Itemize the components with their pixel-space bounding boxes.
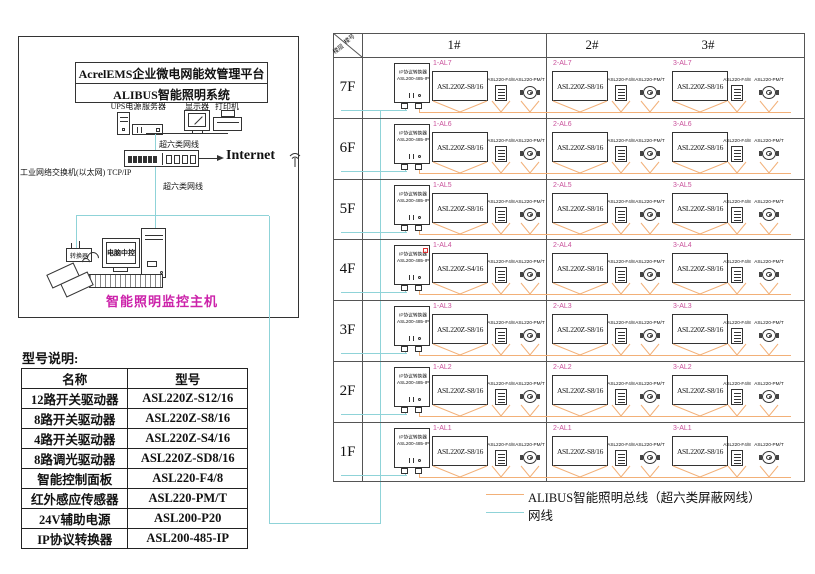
panel-slot <box>618 214 625 215</box>
panel-icon <box>731 146 743 162</box>
sensor-icon <box>762 147 776 160</box>
v-connector <box>432 101 488 113</box>
converter-mark <box>418 216 421 219</box>
panel-slot <box>498 332 505 333</box>
sensor-dot <box>769 153 771 155</box>
row-divider <box>333 300 805 301</box>
sensor-nub <box>657 272 660 277</box>
al-circuit-label: 3-AL5 <box>673 182 692 189</box>
converter-mark <box>418 94 421 97</box>
panel-model-label: ASL220-F4/8 <box>485 260 518 265</box>
row-divider <box>333 179 805 180</box>
sensor-nub <box>657 212 660 217</box>
sensor-model-label: ASL220-PM/T <box>514 321 547 326</box>
panel-model-label: ASL220-F4/8 <box>605 139 638 144</box>
panel-icon <box>731 389 743 405</box>
v-connector <box>520 101 540 113</box>
panel-slot <box>618 92 625 93</box>
sensor-model-label: ASL220-PM/T <box>634 321 667 326</box>
panel-slot <box>618 393 625 394</box>
ip-converter-box: IP协议转换器ASL200-485-IP <box>394 367 430 407</box>
v-connector <box>491 405 511 417</box>
sensor-nub <box>640 90 643 95</box>
panel-model-label: ASL220-F4/8 <box>485 139 518 144</box>
sensor-nub <box>776 272 779 277</box>
panel-icon <box>495 450 507 466</box>
ip-converter-box: IP协议转换器ASL200-485-IP <box>394 185 430 225</box>
panel-model-label: ASL220-F4/8 <box>721 443 754 448</box>
sensor-nub <box>640 333 643 338</box>
panel-model-label: ASL220-F4/8 <box>721 382 754 387</box>
sensor-model-label: ASL220-PM/T <box>514 382 547 387</box>
sensor-nub <box>657 333 660 338</box>
sensor-nub <box>776 151 779 156</box>
panel-slot <box>734 454 741 455</box>
converter-mark <box>409 215 410 220</box>
sensor-dot <box>650 396 652 398</box>
sensor-icon <box>762 451 776 464</box>
driver-box: ASL220Z-S8/16 <box>672 193 728 223</box>
v-connector <box>640 101 660 113</box>
sensor-nub <box>776 394 779 399</box>
v-connector <box>640 162 660 174</box>
v-connector <box>672 162 728 174</box>
panel-slot <box>618 454 625 455</box>
driver-model-label: ASL220Z-S8/16 <box>553 204 607 213</box>
panel-slot <box>618 463 625 464</box>
sensor-dot <box>769 457 771 459</box>
sensor-nub <box>776 212 779 217</box>
al-circuit-label: 2-AL7 <box>553 60 572 67</box>
driver-model-label: ASL220Z-S8/16 <box>433 325 487 334</box>
converter-mark <box>413 154 414 159</box>
panel-slot <box>618 460 625 461</box>
driver-model-label: ASL220Z-S8/16 <box>553 143 607 152</box>
converter-mark <box>418 337 421 340</box>
panel-icon <box>495 146 507 162</box>
ip-converter-model: ASL200-485-IP <box>396 259 430 264</box>
panel-icon <box>615 146 627 162</box>
v-connector <box>727 405 747 417</box>
driver-model-label: ASL220Z-S8/16 <box>553 325 607 334</box>
panel-slot <box>618 220 625 221</box>
panel-slot <box>498 454 505 455</box>
ip-converter-model: ASL200-485-IP <box>396 138 430 143</box>
al-circuit-label: 1-AL6 <box>433 121 452 128</box>
v-connector <box>552 283 608 295</box>
panel-slot <box>498 280 505 281</box>
converter-mark <box>413 458 414 463</box>
panel-slot <box>618 159 625 160</box>
panel-model-label: ASL220-F4/8 <box>605 443 638 448</box>
ip-converter-name: IP协议转换器 <box>399 433 427 440</box>
v-connector <box>759 101 779 113</box>
driver-box: ASL220Z-S8/16 <box>432 132 488 162</box>
sensor-dot <box>530 153 532 155</box>
sensor-model-label: ASL220-PM/T <box>634 382 667 387</box>
sensor-nub <box>759 455 762 460</box>
sensor-dot <box>769 274 771 276</box>
sensor-dot <box>650 214 652 216</box>
v-connector <box>611 466 631 478</box>
driver-model-label: ASL220Z-S8/16 <box>673 386 727 395</box>
panel-slot <box>498 277 505 278</box>
panel-slot <box>734 217 741 218</box>
sensor-nub <box>537 455 540 460</box>
converter-mark <box>409 154 410 159</box>
sensor-icon <box>523 329 537 342</box>
v-connector <box>672 344 728 356</box>
sensor-model-label: ASL220-PM/T <box>753 443 786 448</box>
panel-icon <box>731 85 743 101</box>
v-connector <box>727 283 747 295</box>
panel-icon <box>731 267 743 283</box>
row-divider <box>333 118 805 119</box>
sensor-icon <box>643 268 657 281</box>
ip-converter-name: IP协议转换器 <box>399 190 427 197</box>
panel-model-label: ASL220-F4/8 <box>485 321 518 326</box>
panel-model-label: ASL220-F4/8 <box>721 260 754 265</box>
panel-slot <box>734 271 741 272</box>
floor-label: 5F <box>333 179 362 239</box>
floor-label: 3F <box>333 300 362 361</box>
driver-box: ASL220Z-S8/16 <box>552 253 608 283</box>
sensor-dot <box>650 274 652 276</box>
sensor-model-label: ASL220-PM/T <box>753 200 786 205</box>
panel-icon <box>495 267 507 283</box>
panel-slot <box>498 95 505 96</box>
al-circuit-label: 1-AL2 <box>433 364 452 371</box>
panel-slot <box>498 156 505 157</box>
sensor-dot <box>530 92 532 94</box>
sensor-icon <box>762 208 776 221</box>
driver-box: ASL220Z-S4/16 <box>432 253 488 283</box>
al-circuit-label: 3-AL6 <box>673 121 692 128</box>
panel-icon <box>495 85 507 101</box>
net-line <box>341 171 407 172</box>
sensor-nub <box>657 151 660 156</box>
row-divider <box>333 422 805 423</box>
sensor-nub <box>640 212 643 217</box>
sensor-icon <box>643 390 657 403</box>
panel-slot <box>734 89 741 90</box>
driver-model-label: ASL220Z-S8/16 <box>433 143 487 152</box>
v-connector <box>491 344 511 356</box>
driver-box: ASL220Z-S8/16 <box>552 436 608 466</box>
panel-slot <box>618 335 625 336</box>
sensor-dot <box>650 153 652 155</box>
panel-slot <box>734 393 741 394</box>
sensor-model-label: ASL220-PM/T <box>514 200 547 205</box>
sensor-nub <box>520 394 523 399</box>
net-line <box>341 414 407 415</box>
sensor-icon <box>523 451 537 464</box>
sensor-nub <box>776 90 779 95</box>
panel-slot <box>734 399 741 400</box>
v-connector <box>727 101 747 113</box>
panel-icon <box>615 328 627 344</box>
panel-slot <box>734 214 741 215</box>
driver-model-label: ASL220Z-S8/16 <box>673 204 727 213</box>
panel-slot <box>734 153 741 154</box>
v-connector <box>552 223 608 235</box>
v-connector <box>640 283 660 295</box>
floor-label: 7F <box>333 57 362 118</box>
v-connector <box>640 466 660 478</box>
v-connector <box>520 405 540 417</box>
converter-mark <box>413 93 414 98</box>
driver-model-label: ASL220Z-S4/16 <box>433 264 487 273</box>
sensor-model-label: ASL220-PM/T <box>634 260 667 265</box>
driver-box: ASL220Z-S8/16 <box>432 71 488 101</box>
panel-icon <box>495 389 507 405</box>
panel-slot <box>498 98 505 99</box>
ip-converter-model: ASL200-485-IP <box>396 320 430 325</box>
v-connector <box>552 101 608 113</box>
driver-box: ASL220Z-S8/16 <box>672 132 728 162</box>
ip-converter-box: IP协议转换器ASL200-485-IP <box>394 63 430 103</box>
sensor-icon <box>523 86 537 99</box>
sensor-nub <box>537 272 540 277</box>
driver-box: ASL220Z-S8/16 <box>672 253 728 283</box>
v-connector <box>491 283 511 295</box>
panel-slot <box>734 277 741 278</box>
panel-slot <box>734 211 741 212</box>
panel-slot <box>498 335 505 336</box>
panel-slot <box>734 338 741 339</box>
sensor-model-label: ASL220-PM/T <box>634 443 667 448</box>
sensor-icon <box>762 329 776 342</box>
v-connector <box>759 344 779 356</box>
v-connector <box>672 466 728 478</box>
driver-model-label: ASL220Z-S8/16 <box>673 82 727 91</box>
sensor-nub <box>520 212 523 217</box>
driver-box: ASL220Z-S8/16 <box>552 132 608 162</box>
panel-icon <box>615 207 627 223</box>
v-connector <box>491 466 511 478</box>
v-connector <box>520 344 540 356</box>
driver-model-label: ASL220Z-S8/16 <box>553 386 607 395</box>
sensor-dot <box>530 396 532 398</box>
sensor-nub <box>520 272 523 277</box>
panel-slot <box>498 341 505 342</box>
converter-port <box>401 285 408 291</box>
v-connector <box>611 162 631 174</box>
panel-slot <box>618 338 625 339</box>
sensor-dot <box>530 214 532 216</box>
panel-slot <box>618 396 625 397</box>
panel-slot <box>498 399 505 400</box>
v-connector <box>672 405 728 417</box>
floor-label: 1F <box>333 422 362 482</box>
v-connector <box>520 283 540 295</box>
al-circuit-label: 2-AL4 <box>553 242 572 249</box>
sensor-model-label: ASL220-PM/T <box>634 139 667 144</box>
v-connector <box>432 162 488 174</box>
v-connector <box>727 162 747 174</box>
sensor-model-label: ASL220-PM/T <box>514 78 547 83</box>
sensor-nub <box>537 151 540 156</box>
sensor-icon <box>523 390 537 403</box>
sensor-icon <box>643 451 657 464</box>
sensor-dot <box>769 335 771 337</box>
panel-slot <box>498 150 505 151</box>
panel-slot <box>498 338 505 339</box>
v-connector <box>611 283 631 295</box>
driver-model-label: ASL220Z-S8/16 <box>673 325 727 334</box>
sensor-nub <box>776 455 779 460</box>
panel-model-label: ASL220-F4/8 <box>721 321 754 326</box>
panel-slot <box>618 98 625 99</box>
al-circuit-label: 3-AL2 <box>673 364 692 371</box>
sensor-dot <box>769 92 771 94</box>
panel-icon <box>615 85 627 101</box>
al-circuit-label: 3-AL1 <box>673 425 692 432</box>
panel-slot <box>734 280 741 281</box>
sensor-nub <box>776 333 779 338</box>
legend-bus-line <box>486 494 524 495</box>
panel-model-label: ASL220-F4/8 <box>485 382 518 387</box>
converter-port <box>401 164 408 170</box>
panel-slot <box>734 274 741 275</box>
sensor-model-label: ASL220-PM/T <box>753 78 786 83</box>
sensor-model-label: ASL220-PM/T <box>634 200 667 205</box>
ip-converter-name: IP协议转换器 <box>399 68 427 75</box>
v-connector <box>611 223 631 235</box>
al-circuit-label: 2-AL5 <box>553 182 572 189</box>
panel-slot <box>498 457 505 458</box>
ip-converter-name: IP协议转换器 <box>399 129 427 136</box>
sensor-nub <box>640 151 643 156</box>
sensor-model-label: ASL220-PM/T <box>634 78 667 83</box>
sensor-nub <box>520 90 523 95</box>
panel-slot <box>618 95 625 96</box>
panel-slot <box>618 402 625 403</box>
sensor-nub <box>657 90 660 95</box>
panel-slot <box>498 159 505 160</box>
sensor-model-label: ASL220-PM/T <box>514 139 547 144</box>
al-circuit-label: 1-AL1 <box>433 425 452 432</box>
panel-model-label: ASL220-F4/8 <box>485 78 518 83</box>
ip-converter-box: IP协议转换器ASL200-485-IP <box>394 306 430 346</box>
al-circuit-label: 2-AL2 <box>553 364 572 371</box>
v-connector <box>552 344 608 356</box>
v-connector <box>672 101 728 113</box>
ip-converter-box: IP协议转换器ASL200-485-IP <box>394 124 430 164</box>
al-circuit-label: 2-AL3 <box>553 303 572 310</box>
sensor-model-label: ASL220-PM/T <box>514 443 547 448</box>
driver-model-label: ASL220Z-S8/16 <box>553 447 607 456</box>
v-connector <box>759 405 779 417</box>
converter-mark <box>418 459 421 462</box>
converter-mark <box>409 275 410 280</box>
driver-box: ASL220Z-S8/16 <box>672 375 728 405</box>
v-connector <box>432 466 488 478</box>
sensor-nub <box>759 212 762 217</box>
panel-model-label: ASL220-F4/8 <box>485 443 518 448</box>
sensor-model-label: ASL220-PM/T <box>753 382 786 387</box>
row-divider <box>333 239 805 240</box>
panel-slot <box>618 457 625 458</box>
sensor-dot <box>769 214 771 216</box>
sensor-icon <box>643 86 657 99</box>
sensor-icon <box>762 86 776 99</box>
panel-slot <box>618 280 625 281</box>
panel-slot <box>618 399 625 400</box>
panel-icon <box>495 328 507 344</box>
panel-slot <box>618 341 625 342</box>
panel-slot <box>618 153 625 154</box>
driver-box: ASL220Z-S8/16 <box>432 436 488 466</box>
converter-port <box>401 407 408 413</box>
driver-model-label: ASL220Z-S8/16 <box>673 143 727 152</box>
v-connector <box>672 223 728 235</box>
panel-icon <box>731 328 743 344</box>
sensor-icon <box>523 268 537 281</box>
net-line <box>341 232 407 233</box>
driver-box: ASL220Z-S8/16 <box>552 375 608 405</box>
al-circuit-label: 3-AL4 <box>673 242 692 249</box>
sensor-icon <box>643 208 657 221</box>
converter-mark <box>418 398 421 401</box>
panel-slot <box>734 463 741 464</box>
panel-icon <box>615 267 627 283</box>
al-circuit-label: 1-AL7 <box>433 60 452 67</box>
row-divider <box>333 361 805 362</box>
panel-slot <box>734 335 741 336</box>
al-circuit-label: 2-AL6 <box>553 121 572 128</box>
sensor-nub <box>640 272 643 277</box>
floor-label: 2F <box>333 361 362 422</box>
v-connector <box>552 466 608 478</box>
v-connector <box>491 162 511 174</box>
ip-converter-box: IP协议转换器ASL200-485-IP <box>394 428 430 468</box>
al-circuit-label: 1-AL3 <box>433 303 452 310</box>
v-connector <box>640 223 660 235</box>
converter-mark <box>418 155 421 158</box>
net-line <box>341 110 407 111</box>
panel-icon <box>731 450 743 466</box>
panel-slot <box>618 89 625 90</box>
driver-box: ASL220Z-S8/16 <box>552 193 608 223</box>
sensor-model-label: ASL220-PM/T <box>753 321 786 326</box>
panel-slot <box>498 393 505 394</box>
ip-converter-model: ASL200-485-IP <box>396 442 430 447</box>
v-connector <box>672 283 728 295</box>
panel-slot <box>498 211 505 212</box>
sensor-icon <box>643 329 657 342</box>
panel-model-label: ASL220-F4/8 <box>721 200 754 205</box>
panel-slot <box>618 277 625 278</box>
v-connector <box>727 223 747 235</box>
panel-model-label: ASL220-F4/8 <box>605 382 638 387</box>
v-connector <box>611 405 631 417</box>
converter-mark <box>409 458 410 463</box>
panel-icon <box>731 207 743 223</box>
driver-model-label: ASL220Z-S8/16 <box>553 264 607 273</box>
panel-slot <box>498 220 505 221</box>
floor-label: 6F <box>333 118 362 179</box>
panel-slot <box>734 220 741 221</box>
ip-converter-box: IP协议转换器ASL200-485-IP <box>394 245 430 285</box>
converter-mark <box>418 276 421 279</box>
al-circuit-label: 1-AL4 <box>433 242 452 249</box>
sensor-dot <box>650 335 652 337</box>
panel-slot <box>734 341 741 342</box>
panel-model-label: ASL220-F4/8 <box>605 260 638 265</box>
ip-converter-model: ASL200-485-IP <box>396 199 430 204</box>
panel-slot <box>618 211 625 212</box>
